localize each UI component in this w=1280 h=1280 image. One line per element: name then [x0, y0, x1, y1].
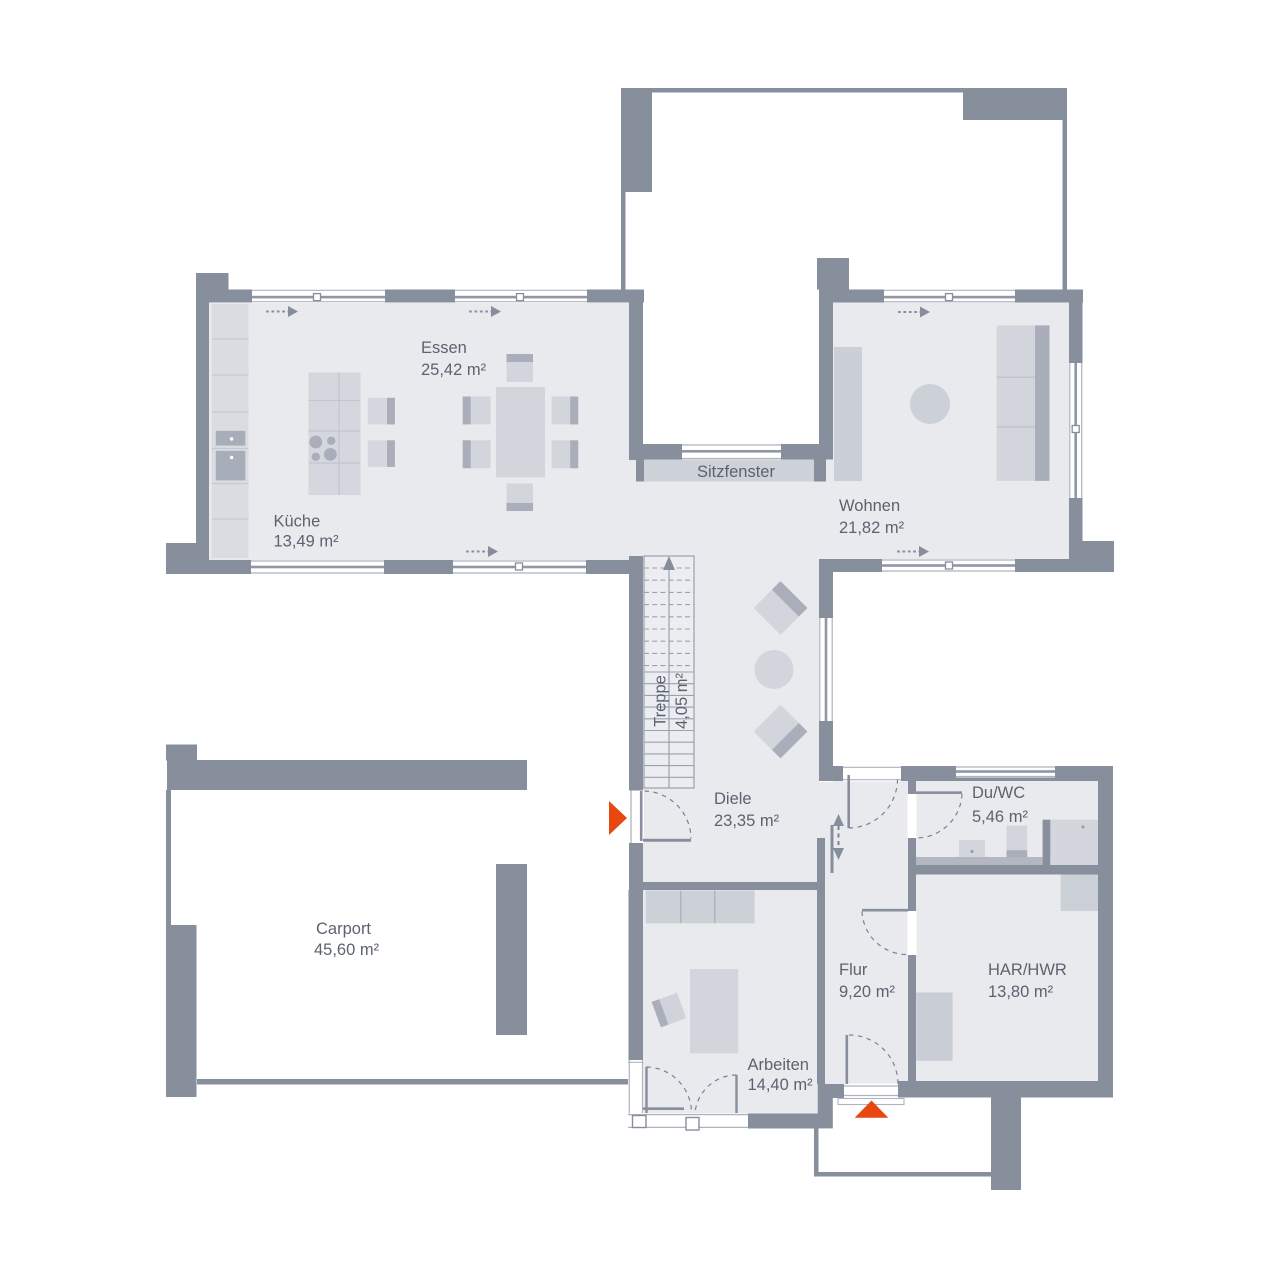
svg-text:Wohnen: Wohnen: [839, 497, 900, 515]
svg-text:Küche: Küche: [274, 513, 321, 531]
svg-text:5,46 m²: 5,46 m²: [972, 808, 1028, 826]
svg-text:Diele: Diele: [714, 790, 752, 808]
svg-text:Du/WC: Du/WC: [972, 784, 1025, 802]
svg-text:21,82 m²: 21,82 m²: [839, 519, 905, 537]
svg-text:Sitzfenster: Sitzfenster: [697, 463, 775, 481]
svg-text:Essen: Essen: [421, 339, 467, 357]
svg-text:13,80 m²: 13,80 m²: [988, 983, 1054, 1001]
svg-text:13,49 m²: 13,49 m²: [274, 533, 340, 551]
svg-text:23,35 m²: 23,35 m²: [714, 812, 780, 830]
svg-text:Treppe: Treppe: [652, 675, 670, 727]
svg-text:14,40 m²: 14,40 m²: [748, 1076, 814, 1094]
svg-text:Flur: Flur: [839, 961, 868, 979]
svg-text:9,20 m²: 9,20 m²: [839, 983, 895, 1001]
svg-text:Carport: Carport: [316, 920, 371, 938]
svg-text:4,05 m²: 4,05 m²: [673, 673, 691, 729]
svg-text:HAR/HWR: HAR/HWR: [988, 961, 1067, 979]
svg-text:Arbeiten: Arbeiten: [748, 1056, 809, 1074]
svg-text:25,42 m²: 25,42 m²: [421, 361, 487, 379]
svg-text:45,60 m²: 45,60 m²: [314, 941, 380, 959]
